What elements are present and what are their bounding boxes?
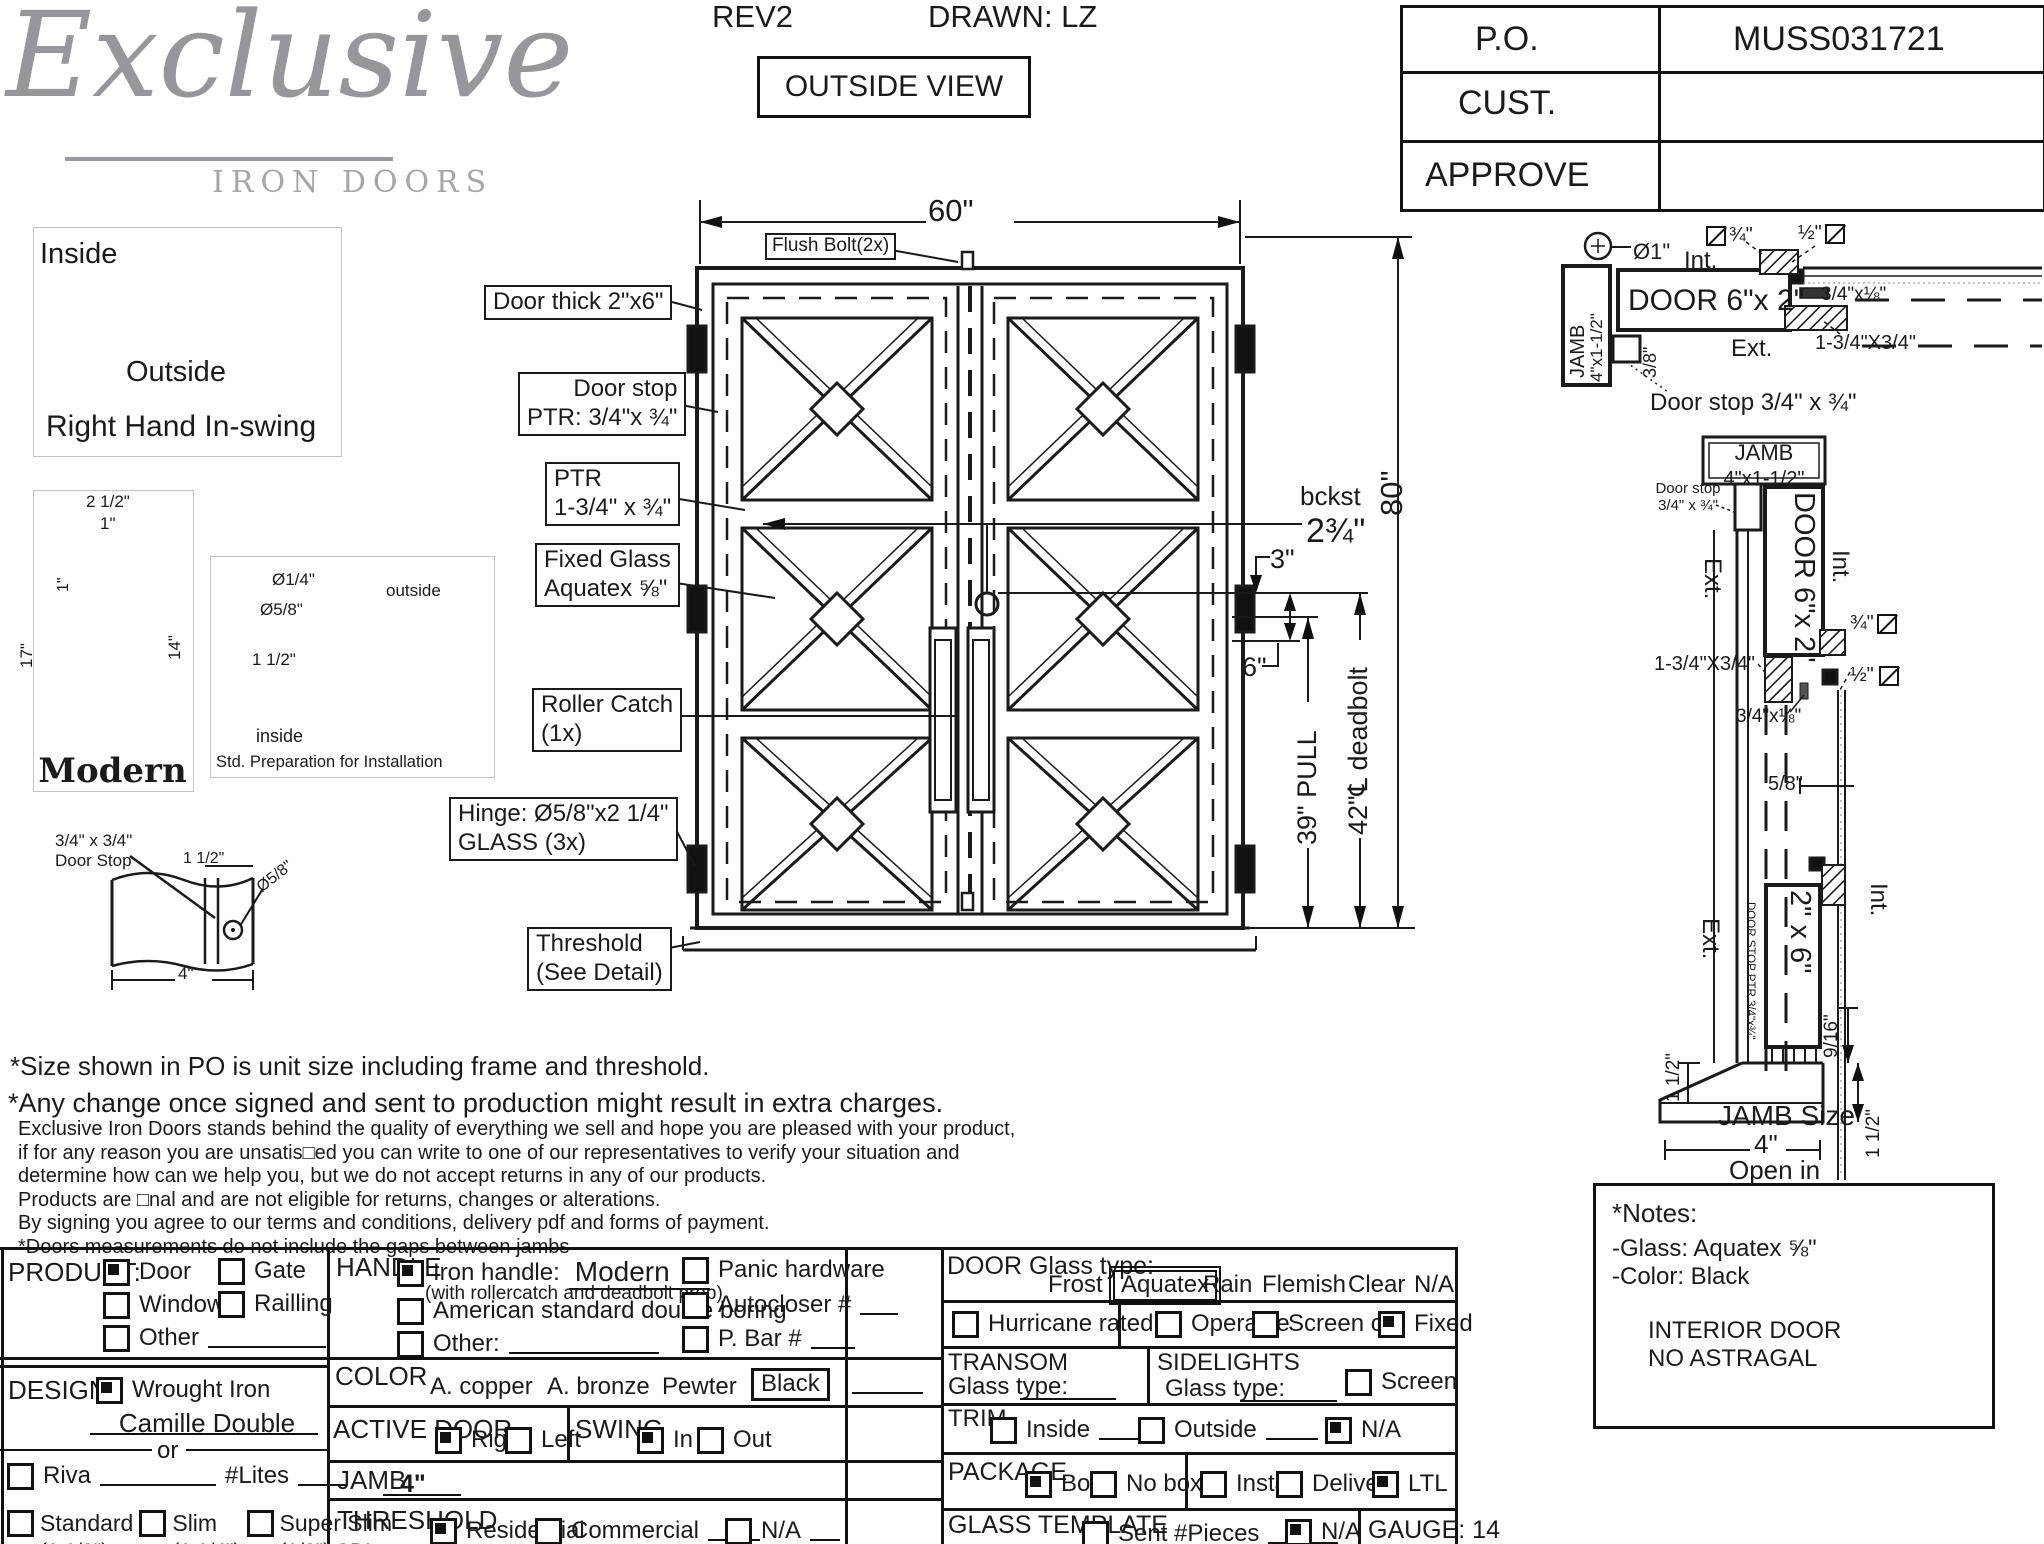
doorstop-width: 4" [178,964,194,983]
head-sq34-text: ¾" [1729,224,1753,247]
form-border [941,1403,1455,1406]
drawing-sheet: Exclusive IRON DOORS REV2 DRAWN: LZ OUTS… [0,0,2044,1544]
side-strip: 3/4"x⅛" [1736,706,1801,727]
handle-dim-17: 17" [18,643,35,668]
label: Railling [254,1290,333,1318]
label: N/A [1321,1518,1361,1544]
handle-dim-14: 14" [166,635,183,660]
color-black-selected[interactable]: Black [751,1368,830,1401]
checkbox-residential[interactable] [430,1518,457,1544]
swing-in-option[interactable]: In [637,1426,693,1454]
side-int-bot: Int. [1866,883,1890,916]
glass-rain[interactable]: Rain [1203,1272,1252,1299]
doorstop-size: 3/4" x 3/4" [55,831,132,850]
label: Window [139,1291,224,1319]
head-jamb-v: JAMB [1568,325,1588,378]
form-border [330,1460,941,1463]
checkbox-trim-na[interactable] [1325,1417,1352,1444]
glass-template-na-option[interactable]: N/A [1285,1518,1361,1544]
checkbox-box[interactable] [1025,1471,1052,1498]
design-size-options: Standard(1 1/2") Slim(1 1/4") Super Slim… [7,1510,392,1544]
side-jamb-size-label: JAMB Size [1718,1100,1855,1131]
roller-catch-label: Roller Catch (1x) [532,688,682,752]
checkbox-operable[interactable] [1155,1311,1182,1338]
trim-outside-blank[interactable] [1266,1420,1318,1440]
square-tube-icon [1877,614,1897,634]
backset-value: 2¾" [1306,512,1365,550]
label: Fixed [1414,1310,1473,1338]
product-other-option[interactable]: Other [103,1324,326,1352]
checkbox-active-right[interactable] [435,1427,462,1454]
side-ext-top: Ext. [1700,558,1724,599]
disclaimer-line1: *Size shown in PO is unit size including… [10,1052,709,1081]
side-dim112-left: 1 1/2" [1664,1053,1683,1102]
form-border [0,1365,327,1368]
rev-label: REV2 [712,0,793,35]
side-dim112-right: 1 1/2" [1864,1109,1883,1158]
checkbox-nobox[interactable] [1090,1471,1117,1498]
std-prep-caption: Std. Preparation for Installation [216,753,491,771]
outside-view-label: OUTSIDE VIEW [757,56,1031,118]
head-sq34: ¾" [1706,224,1753,247]
square-tube-icon [1825,224,1845,244]
pbar-option[interactable]: P. Bar # [682,1325,855,1353]
side-dim916: 9/16" [1822,1014,1841,1058]
trim-na-option[interactable]: N/A [1325,1416,1401,1444]
autocloser-blank[interactable] [860,1295,898,1315]
label: LTL [1408,1470,1448,1498]
handle-dim-2-5: 2 1/2" [86,492,130,511]
checkbox-wrought-iron[interactable] [96,1377,123,1404]
head-dim38: 3/8" [1641,347,1659,378]
notes-interior: INTERIOR DOOR [1648,1317,1976,1345]
label: Riva [43,1462,91,1490]
checkbox-slim[interactable] [139,1510,166,1537]
side-int-top: Int. [1828,550,1852,583]
trim-outside-option[interactable]: Outside [1138,1416,1318,1444]
head-sq12: ½" [1798,222,1845,245]
color-blank[interactable] [852,1392,923,1394]
head-jamb-size-v: 4"x1-1/2" [1588,313,1605,382]
notes-box: *Notes: -Glass: Aquatex ⅝" -Color: Black… [1593,1183,1995,1429]
label: Door [139,1258,191,1286]
sublabel: (1 1/4") [172,1540,240,1544]
label: Hurricane rated [988,1310,1153,1338]
checkbox-delivery[interactable] [1276,1471,1303,1498]
label: Sent #Pieces [1118,1520,1259,1544]
disclaimer-body-line: Products are □nal and are not eligible f… [18,1189,1015,1213]
dim-three: 3" [1270,544,1295,574]
side-ext-bot: Ext. [1698,918,1722,959]
checkbox-install[interactable] [1200,1471,1227,1498]
slim-option[interactable]: Slim(1 1/4") [172,1510,240,1544]
head-int: Int. [1684,248,1717,275]
sublabel: (1 1/2") [40,1540,108,1544]
checkbox-american-boring[interactable] [397,1298,424,1325]
square-tube-icon [1706,226,1726,246]
label: Screen or [1288,1310,1392,1338]
glass-flemish[interactable]: Flemish [1262,1272,1346,1299]
dim-deadbolt: 42"℄ deadbolt [1345,667,1372,835]
notes-title: *Notes: [1612,1198,1976,1229]
po-table: P.O. MUSS031721 CUST. APPROVE [1400,5,2044,212]
head-door-stop: Door stop 3/4" x ¾" [1650,390,1856,417]
product-other-blank[interactable] [208,1328,326,1348]
po-value[interactable]: MUSS031721 [1733,20,1945,58]
cust-label: CUST. [1458,84,1556,122]
head-door-label: DOOR 6"x 2" [1628,284,1804,318]
door-width-dim: 60" [928,194,974,229]
transom-glass-label: Glass type: [948,1374,1068,1401]
side-door-stop: Door stop 3/4" x ¾" [1645,481,1731,515]
logo-iron-doors: IRON DOORS [212,166,493,200]
lites-label: #Lites [225,1462,289,1490]
side-open-in: Open in [1729,1156,1820,1185]
label: Screen [1381,1368,1457,1396]
form-border [0,1357,327,1360]
label: P. Bar # [718,1325,802,1353]
glass-aquatex-selected[interactable]: Aquatex [1113,1270,1217,1301]
side-sq12: ½" [1850,664,1899,687]
label: Commercial [571,1517,699,1544]
form-border [941,1247,944,1544]
std-prep-dia-58: Ø5/8" [260,600,303,619]
handle-dim-1b: 1" [56,577,72,592]
checkbox-sidelight-screen[interactable] [1345,1369,1372,1396]
head-bar: 1-3/4"X3/4" [1815,332,1916,354]
checkbox-railing[interactable] [218,1291,245,1318]
notes-glass: -Glass: Aquatex ⅝" [1612,1235,1976,1263]
label: Outside [1174,1416,1257,1444]
color-bronze[interactable]: A. bronze [547,1374,650,1401]
ptr-label: PTR 1-3/4" x ¾" [545,462,680,526]
form-border [941,1452,1455,1455]
checkbox-super-slim[interactable] [247,1510,274,1537]
checkbox-hurricane[interactable] [952,1311,979,1338]
checkbox-active-left[interactable] [505,1427,532,1454]
design-model-underline [90,1433,318,1435]
product-railing-option[interactable]: Railling [218,1290,333,1318]
checkbox-window[interactable] [103,1292,130,1319]
flush-bolt-label: Flush Bolt(2x) [765,233,896,260]
dim-six: 6" [1242,652,1267,682]
side-sq12-text: ½" [1850,664,1874,687]
sidelights-screen-option[interactable]: Screen [1345,1368,1457,1396]
side-jamb-title-text: JAMB [1735,440,1794,465]
std-prep-dia-quarter: Ø1/4" [272,570,315,589]
drawn-label: DRAWN: LZ [928,0,1097,35]
color-title: COLOR [335,1362,427,1391]
head-strip: 3/4"x⅛" [1821,284,1886,305]
square-tube-icon [1879,666,1899,686]
label: Inside [1026,1416,1090,1444]
doorstop-dim-15: 1 1/2" [183,850,224,868]
checkbox-screen-or[interactable] [1252,1311,1279,1338]
checkbox-iron-handle[interactable] [397,1260,424,1287]
approve-label: APPROVE [1425,156,1589,194]
or-text: or [157,1438,178,1465]
package-nobox-option[interactable]: No box [1090,1470,1202,1498]
fixed-option[interactable]: Fixed [1378,1310,1473,1338]
label: Wrought Iron [132,1376,270,1404]
side-door2: 2" x 6" [1785,890,1814,973]
checkbox-ltl[interactable] [1372,1471,1399,1498]
color-pewter[interactable]: Pewter [662,1374,737,1401]
checkbox-pbar[interactable] [682,1326,709,1353]
fixed-glass-label: Fixed Glass Aquatex ⅝" [535,543,680,607]
bckst-label: bckst [1300,482,1361,511]
side-bar: 1-3/4"X3/4" [1654,653,1755,675]
label: Other: [433,1330,500,1358]
checkbox-trim-inside[interactable] [990,1417,1017,1444]
checkbox-handle-other[interactable] [397,1331,424,1358]
checkbox-autocloser[interactable] [682,1292,709,1319]
standard-option[interactable]: Standard(1 1/2") [40,1510,133,1544]
product-window-option[interactable]: Window [103,1291,224,1319]
product-door-option[interactable]: Door [103,1258,191,1286]
swing-out-option[interactable]: Out [697,1426,772,1454]
label: Other [139,1324,199,1352]
dim-pull: 39" PULL [1294,730,1321,845]
side-stop-ptr: DOOR STOP PTR 3/4"x¾" [1744,902,1756,1039]
label: Standard [40,1510,133,1536]
disclaimer-line2: *Any change once signed and sent to prod… [8,1088,943,1118]
side-door-label: DOOR 6"x 2" [1789,492,1818,662]
door-thick-label: Door thick 2"x6" [484,285,672,320]
sidelights-blank[interactable] [1240,1400,1337,1402]
label: Slim [172,1510,217,1536]
checkbox-commercial[interactable] [535,1518,562,1544]
handle-other-blank[interactable] [509,1334,659,1354]
active-left-option[interactable]: Left [505,1426,581,1454]
checkbox-product-other[interactable] [103,1325,130,1352]
label: Out [733,1426,772,1454]
form-border [330,1498,941,1501]
door-stop-label: Door stop PTR: 3/4"x ¾" [518,372,686,436]
logo-underline [65,157,393,161]
color-copper[interactable]: A. copper [430,1374,533,1401]
checkbox-swing-out[interactable] [697,1427,724,1454]
doorstop-name: Door Stop [55,851,132,870]
label: N/A [761,1517,801,1544]
door-height-dim: 80" [1376,471,1407,517]
threshold-na-option[interactable]: N/A [725,1517,840,1544]
handle-style-caption: Modern [33,752,192,790]
hinge-label: Hinge: Ø5/8"x2 1/4" GLASS (3x) [449,797,678,861]
package-ltl-option[interactable]: LTL [1372,1470,1448,1498]
label: In [673,1426,693,1454]
glass-clear[interactable]: Clear [1348,1272,1405,1299]
checkbox-sent-pieces[interactable] [1082,1521,1109,1544]
jamb-blank [383,1494,461,1496]
notes-color: -Color: Black [1612,1263,1976,1291]
checkbox-trim-outside[interactable] [1138,1417,1165,1444]
side-jamb-size-text: 4"x1-1/2" [1724,468,1805,490]
form-border [0,1247,1455,1250]
threshold-label: Threshold (See Detail) [527,927,672,991]
glass-na[interactable]: N/A [1414,1272,1454,1299]
notes-astragal: NO ASTRAGAL [1648,1345,1976,1373]
disclaimer-body-line: Exclusive Iron Doors stands behind the q… [18,1118,1015,1142]
screen-or-option[interactable]: Screen or [1252,1310,1392,1338]
form-border [1147,1346,1150,1403]
disclaimer-body-line: if for any reason you are unsatis□ed you… [18,1142,1015,1166]
side-sq34-text: ¾" [1850,612,1874,635]
side-dim58: 5/8" [1768,773,1803,795]
head-sq12-text: ½" [1798,222,1822,245]
checkbox-swing-in[interactable] [637,1427,664,1454]
riva-blank[interactable] [100,1466,216,1486]
label: N/A [1361,1416,1401,1444]
checkbox-threshold-na[interactable] [725,1518,752,1544]
label: Panic hardware [718,1256,885,1284]
checkbox-door[interactable] [103,1259,130,1286]
checkbox-standard[interactable] [7,1510,34,1537]
disclaimer-body: Exclusive Iron Doors stands behind the q… [18,1118,1015,1259]
design-riva-option[interactable]: Riva#Lites [7,1462,346,1490]
sidelights-title: SIDELIGHTS [1157,1350,1300,1377]
disclaimer-body-line: By signing you agree to our terms and co… [18,1212,1015,1236]
label: Gate [254,1257,306,1285]
swing-outside-label: Outside [126,356,226,388]
sidelights-glass-label: Glass type: [1165,1376,1285,1403]
std-prep-inside: inside [256,726,303,746]
or-divider [0,1449,152,1451]
logo-exclusive: Exclusive [6,0,573,124]
hurricane-option[interactable]: Hurricane rated [952,1310,1153,1338]
checkbox-template-na[interactable] [1285,1519,1312,1544]
product-gate-option[interactable]: Gate [218,1257,306,1285]
swing-inside-label: Inside [40,238,117,270]
trim-inside-option[interactable]: Inside [990,1416,1149,1444]
form-border [330,1405,941,1408]
design-wrought-option[interactable]: Wrought Iron [96,1376,270,1404]
outside-view-text: OUTSIDE VIEW [785,70,1003,104]
panic-option[interactable]: Panic hardware [682,1256,885,1284]
label: No box [1126,1470,1202,1498]
std-prep-dim-15: 1 1/2" [252,650,296,669]
form-border [1,1247,4,1544]
handle-other-option[interactable]: Other: [397,1330,659,1358]
disclaimer-body-line: determine how can we help you, but we do… [18,1165,1015,1189]
head-dia1: Ø1" [1633,240,1670,265]
po-label: P.O. [1475,20,1539,58]
checkbox-gate[interactable] [218,1258,245,1285]
checkbox-riva[interactable] [7,1463,34,1490]
swing-caption: Right Hand In-swing [46,410,316,444]
pbar-blank[interactable] [811,1329,855,1349]
autocloser-option[interactable]: Autocloser # [682,1291,898,1319]
checkbox-fixed[interactable] [1378,1311,1405,1338]
threshold-na-blank[interactable] [810,1521,840,1541]
or-divider [186,1449,327,1451]
side-sq34: ¾" [1850,612,1897,635]
glass-frost[interactable]: Frost [1048,1272,1103,1299]
transom-blank[interactable] [1020,1398,1116,1400]
sublabel: (1/2") SDL [280,1540,377,1544]
std-prep-outside: outside [386,581,441,600]
label: Autocloser # [718,1291,851,1319]
head-ext: Ext. [1731,336,1772,363]
checkbox-panic[interactable] [682,1257,709,1284]
gauge-label: GAUGE: 14 [1368,1516,1500,1544]
handle-dim-1a: 1" [100,514,116,533]
